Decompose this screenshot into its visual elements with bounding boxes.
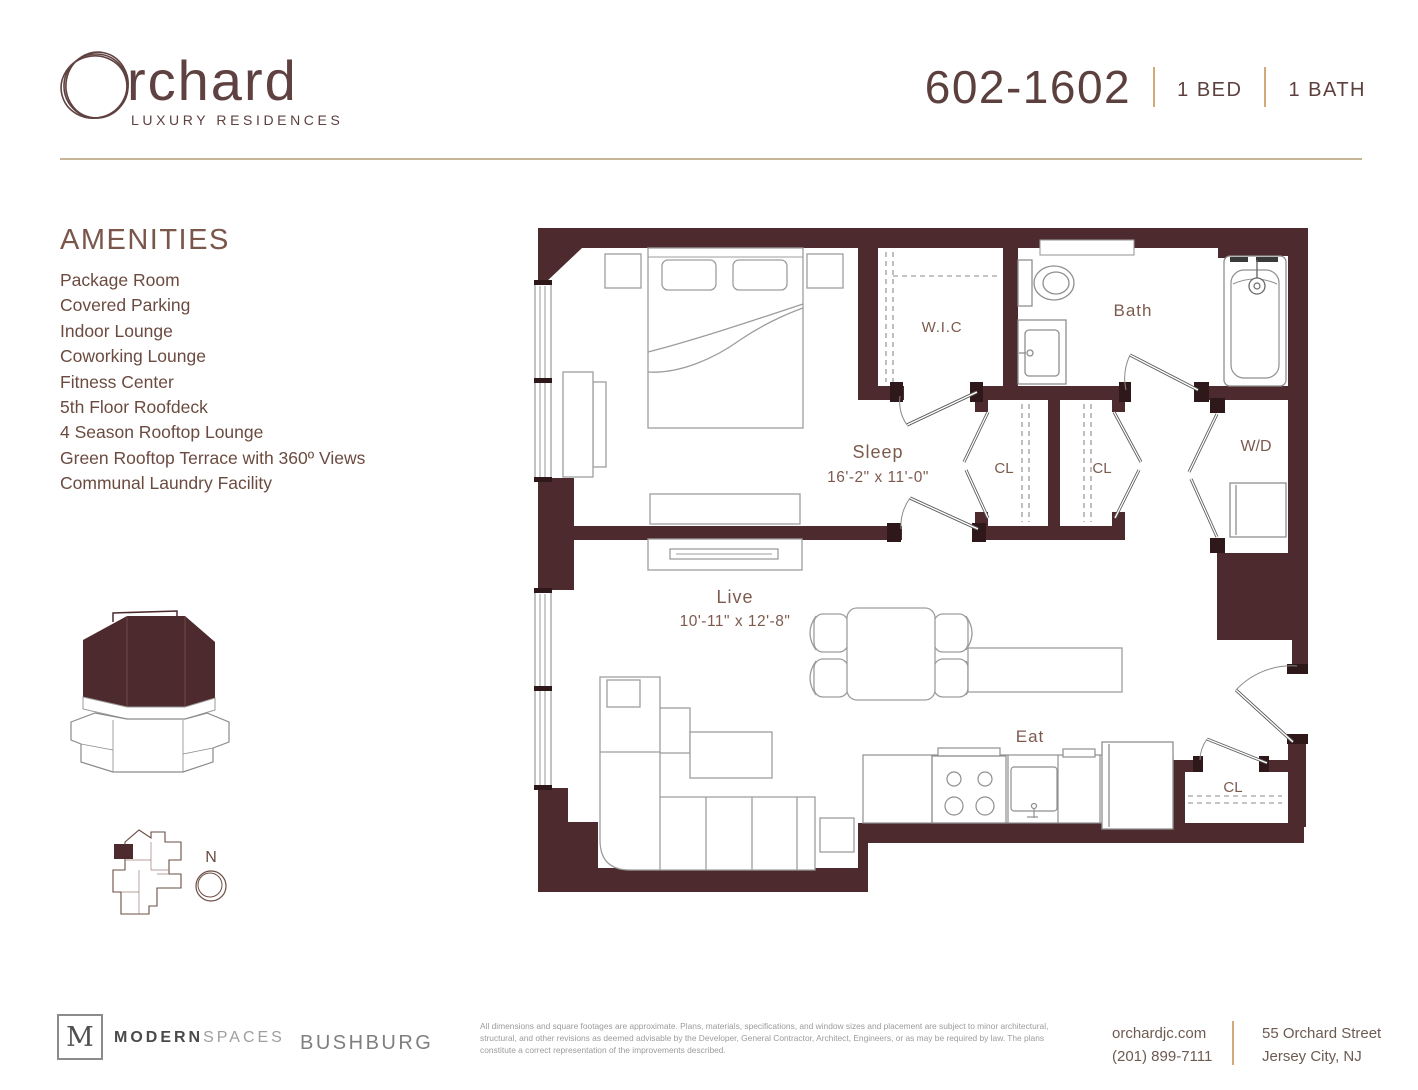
bath-label: Bath bbox=[1114, 301, 1153, 320]
modernspaces-bold: MODERN bbox=[114, 1029, 203, 1046]
live-dims: 10'-11" x 12'-8" bbox=[680, 613, 791, 630]
address-line2: Jersey City, NJ bbox=[1262, 1045, 1381, 1068]
bedroom-console bbox=[650, 494, 800, 524]
floor-plan: Sleep 16'-2" x 11'-0" Live 10'-11" x 12'… bbox=[530, 222, 1315, 907]
closet-label: CL bbox=[1092, 460, 1111, 477]
key-plan: N bbox=[95, 822, 245, 922]
amenity-item: 5th Floor Roofdeck bbox=[60, 395, 365, 420]
live-label: Live bbox=[716, 587, 753, 607]
phone-number: (201) 899-7111 bbox=[1112, 1045, 1212, 1068]
orchard-logo-icon bbox=[56, 46, 134, 126]
modernspaces-letter: M bbox=[66, 1022, 94, 1053]
header-rule bbox=[60, 158, 1362, 160]
amenity-item: Coworking Lounge bbox=[60, 344, 365, 369]
washer-dryer-label: W/D bbox=[1240, 438, 1271, 455]
modernspaces-wordmark: MODERNSPACES bbox=[114, 1029, 285, 1047]
building-illustration bbox=[65, 600, 235, 800]
amenity-item: Green Rooftop Terrace with 360º Views bbox=[60, 446, 365, 471]
legal-disclaimer: All dimensions and square footages are a… bbox=[480, 1021, 1080, 1057]
window bbox=[534, 280, 552, 482]
unit-header: 602-1602 1 BED 1 BATH bbox=[925, 60, 1366, 114]
closet-label: CL bbox=[1223, 779, 1242, 796]
refrigerator bbox=[1102, 742, 1173, 829]
compass-north-label: N bbox=[205, 849, 217, 866]
shower-head-icon bbox=[1249, 278, 1265, 294]
sleep-label: Sleep bbox=[852, 442, 903, 462]
amenity-item: 4 Season Rooftop Lounge bbox=[60, 420, 365, 445]
unit-location-marker bbox=[114, 844, 133, 859]
eat-label: Eat bbox=[1016, 727, 1045, 746]
amenity-item: Communal Laundry Facility bbox=[60, 471, 365, 496]
contact-block: orchardjc.com (201) 899-7111 bbox=[1112, 1022, 1212, 1069]
brand-wordmark: rchard bbox=[127, 48, 298, 113]
bed bbox=[648, 248, 803, 428]
bathroom-mirror bbox=[1040, 240, 1134, 255]
coffee-table bbox=[690, 732, 772, 778]
amenity-item: Indoor Lounge bbox=[60, 319, 365, 344]
washer-dryer-unit bbox=[1230, 483, 1286, 537]
dining-set bbox=[810, 608, 972, 700]
bushburg-wordmark: BUSHBURG bbox=[300, 1032, 433, 1055]
unit-number: 602-1602 bbox=[925, 60, 1131, 114]
sleep-dims: 16'-2" x 11'-0" bbox=[827, 469, 929, 486]
divider bbox=[1264, 67, 1266, 107]
ottoman bbox=[820, 818, 854, 852]
closet-label: CL bbox=[994, 460, 1013, 477]
address-block: 55 Orchard Street Jersey City, NJ bbox=[1262, 1022, 1381, 1069]
unit-baths: 1 BATH bbox=[1288, 73, 1366, 102]
toilet bbox=[1018, 260, 1074, 306]
brand-tagline: LUXURY RESIDENCES bbox=[131, 112, 343, 128]
floorplan-flyer: { "brand": { "wordmark": "rchard", "tagl… bbox=[0, 0, 1418, 1090]
bathtub bbox=[1224, 256, 1286, 386]
amenities-list: Package Room Covered Parking Indoor Loun… bbox=[60, 268, 365, 497]
compass-icon: N bbox=[196, 849, 226, 901]
dishwasher bbox=[1063, 749, 1095, 757]
tv-console bbox=[648, 539, 802, 570]
amenities-title: AMENITIES bbox=[60, 224, 230, 257]
website-link: orchardjc.com bbox=[1112, 1022, 1212, 1045]
amenity-item: Package Room bbox=[60, 268, 365, 293]
footer-divider bbox=[1232, 1021, 1234, 1065]
address-line1: 55 Orchard Street bbox=[1262, 1022, 1381, 1045]
wic-label: W.I.C bbox=[922, 319, 963, 336]
dresser bbox=[563, 372, 606, 477]
amenity-item: Fitness Center bbox=[60, 370, 365, 395]
window bbox=[534, 588, 552, 790]
kitchen-island bbox=[968, 648, 1122, 692]
bathroom-vanity bbox=[1018, 320, 1066, 384]
amenity-item: Covered Parking bbox=[60, 293, 365, 318]
divider bbox=[1153, 67, 1155, 107]
unit-beds: 1 BED bbox=[1177, 73, 1242, 102]
modernspaces-light: SPACES bbox=[203, 1029, 285, 1046]
modernspaces-logo-icon: M bbox=[57, 1014, 103, 1060]
